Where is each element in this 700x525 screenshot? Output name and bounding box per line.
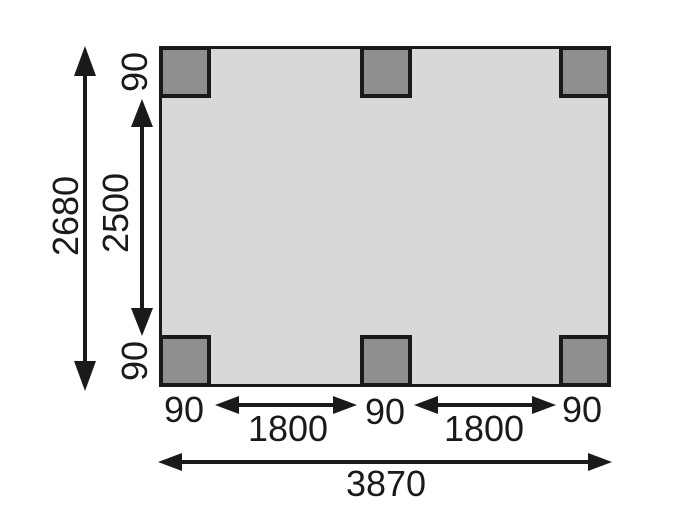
label-post-depth-top: 90 — [117, 52, 153, 92]
post-bottom-left — [159, 335, 211, 387]
post-bottom-middle — [360, 335, 412, 387]
label-inner-depth: 2500 — [98, 173, 134, 253]
post-top-right — [559, 46, 611, 98]
dimension-diagram: 2680 2500 90 90 90 1800 90 1800 90 3870 — [0, 0, 700, 525]
label-post-width-right: 90 — [562, 392, 602, 428]
label-post-depth-bottom: 90 — [117, 341, 153, 381]
post-top-left — [159, 46, 211, 98]
post-bottom-right — [559, 335, 611, 387]
label-bay-left: 1800 — [248, 411, 328, 447]
post-top-middle — [360, 46, 412, 98]
label-bay-right: 1800 — [444, 411, 524, 447]
label-overall-width: 3870 — [346, 466, 426, 502]
label-post-width-left: 90 — [164, 392, 204, 428]
label-overall-depth: 2680 — [48, 176, 84, 256]
label-post-width-middle: 90 — [365, 394, 405, 430]
